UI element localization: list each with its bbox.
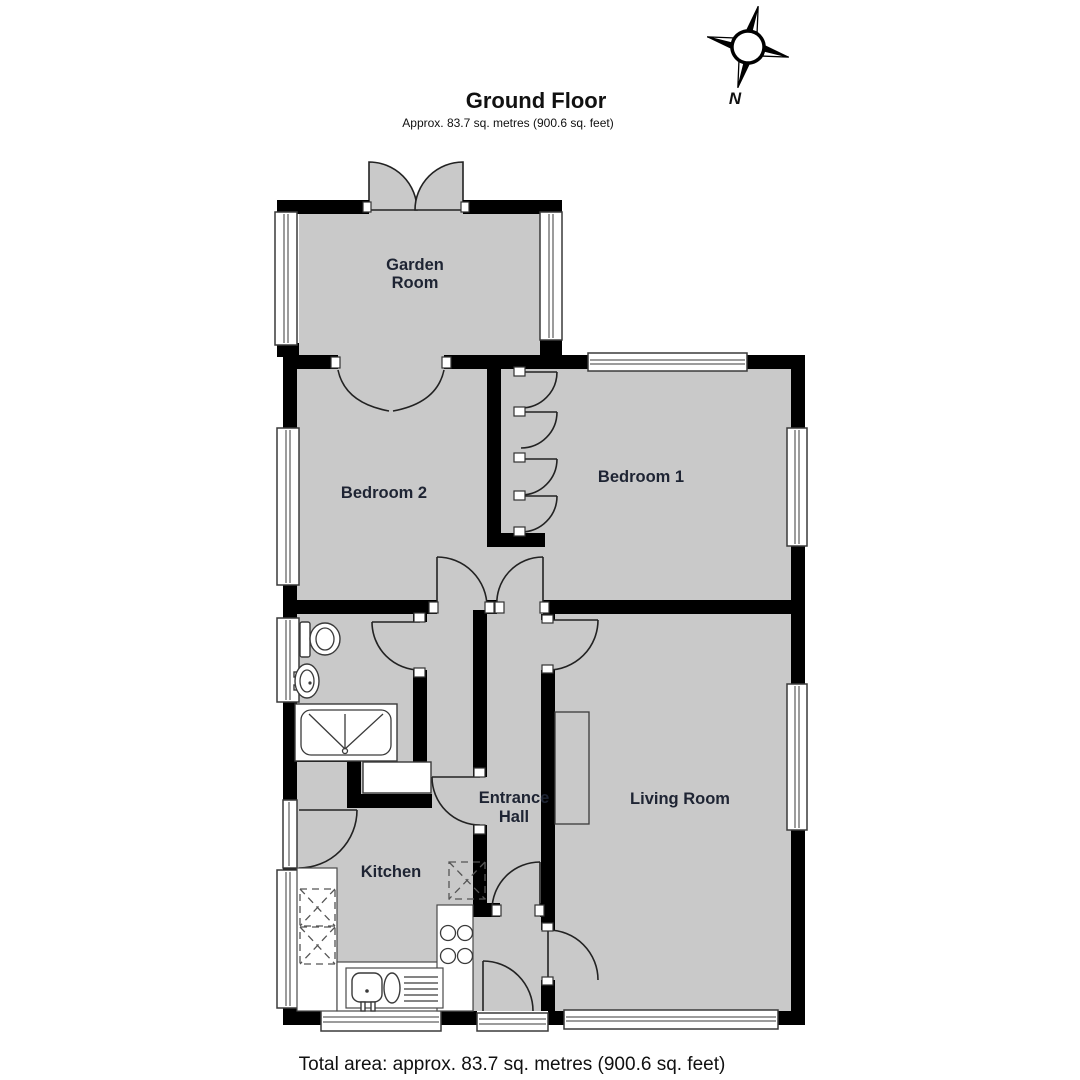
compass-north-label: N	[729, 89, 742, 108]
living-room-window-right	[787, 684, 807, 830]
bedroom1-label: Bedroom 1	[598, 468, 684, 486]
toilet	[300, 622, 340, 657]
living-room-label: Living Room	[630, 790, 730, 808]
kitchen-label: Kitchen	[361, 863, 422, 881]
front-door-sill	[477, 1013, 548, 1031]
kitchen-sink	[346, 968, 443, 1011]
shower-tray	[295, 704, 397, 761]
floor-plan-page: Ground Floor Approx. 83.7 sq. metres (90…	[0, 0, 1080, 1080]
compass-rose: N	[697, 0, 799, 108]
total-area-text: Total area: approx. 83.7 sq. metres (900…	[299, 1054, 726, 1075]
garden-room-french-doors	[369, 162, 463, 210]
kitchen-window-left	[277, 870, 299, 1008]
bedroom1-window-right	[787, 428, 807, 546]
bedroom2-label: Bedroom 2	[341, 484, 427, 502]
living-room-window-bottom	[564, 1010, 778, 1029]
garden-room-label-line1: Garden	[386, 256, 444, 274]
entrance-hall-label-line2: Hall	[499, 808, 529, 826]
kitchen-side-door-glazing	[283, 800, 297, 868]
compass-needle	[697, 0, 799, 98]
garden-room-label-line2: Room	[392, 274, 439, 292]
bedroom2-window	[277, 428, 299, 585]
bedroom1-window-top	[588, 353, 747, 371]
storage-cupboard	[363, 762, 431, 793]
page-title: Ground Floor	[466, 88, 607, 113]
page-subtitle: Approx. 83.7 sq. metres (900.6 sq. feet)	[402, 116, 613, 130]
floor-plan: Ground Floor Approx. 83.7 sq. metres (90…	[0, 0, 1080, 1080]
garden-room-window-right	[540, 212, 562, 340]
garden-room-window-left	[275, 212, 297, 345]
kitchen-window-bottom	[321, 1010, 441, 1031]
entrance-hall-label-line1: Entrance	[479, 789, 550, 807]
basin	[294, 664, 319, 698]
